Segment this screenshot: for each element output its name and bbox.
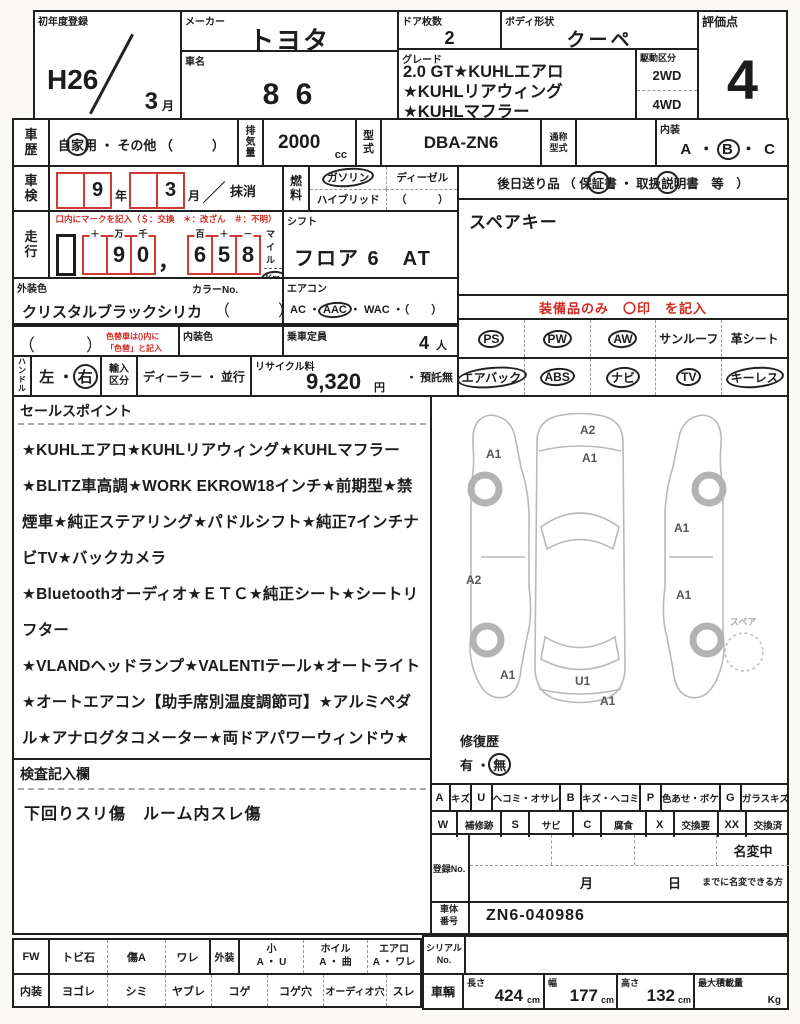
- repaint-cell: （ ） 色替車は()内に 「色替」と記入: [12, 325, 180, 357]
- later-manual-circled: 説: [661, 173, 674, 192]
- exterior-color-label: 外装色: [17, 280, 47, 295]
- registration-section: 登録No. 名変中 月 日 までに名変できる方: [430, 833, 789, 903]
- history-cell: 自家用 ・ その他 （ ）: [48, 118, 239, 167]
- recycle-fee-cell: リサイクル料 9,320 円 ・ 預託無: [250, 355, 459, 397]
- fuel-hybrid: ハイブリッド: [310, 189, 386, 211]
- vin-section: 車体番号 ZN6-040986: [430, 897, 789, 935]
- spare-key-cell: スペアキー: [457, 198, 789, 296]
- doors-cell: ドア枚数 2: [397, 10, 502, 50]
- name-change-pending: 名変中: [717, 835, 789, 865]
- recycle-deposit: ・ 預託無: [406, 369, 453, 385]
- inspection-text: 下回りスリ傷 ルーム内スレ傷: [24, 800, 262, 824]
- interior-grade-label: 内装: [660, 121, 680, 136]
- equip-airbag: エアバック: [459, 359, 524, 395]
- fuel-other: （ ）: [386, 189, 457, 211]
- maker-label: メーカー: [185, 13, 225, 28]
- sales-points-title: セールスポイント: [20, 401, 132, 421]
- equipment-header: 装備品のみ 〇印 を記入: [457, 294, 789, 320]
- odometer-group-2: 百6 ＋5 －8: [187, 235, 261, 275]
- damage-legend-table: Aキズ Uヘコミ・オサレ Bキズ・ヘコミ P色あせ・ボケ Gガラスキズ W補修跡…: [430, 783, 789, 837]
- equip-navi: ナビ: [590, 359, 656, 395]
- repair-history-selected: 無: [493, 755, 506, 774]
- first-registration-month: 3: [145, 88, 158, 116]
- payload-cell: 最大積載量 Kg: [695, 975, 787, 1008]
- interior-color-label: 内装色: [183, 328, 213, 343]
- equip-ps: PS: [459, 320, 524, 357]
- shift-value: フロア 6 AT: [294, 242, 432, 271]
- displacement-value: 2000: [278, 132, 320, 154]
- repaint-note: 色替車は()内に 「色替」と記入: [106, 331, 162, 355]
- car-name-label: 車名: [185, 53, 205, 68]
- drive-4wd: 4WD: [637, 91, 697, 119]
- shift-cell: シフト フロア 6 AT: [282, 210, 459, 279]
- damage-mark: A1: [582, 451, 597, 465]
- import-band: 輸入区分: [100, 355, 138, 397]
- aircon-cell: エアコン AC ・ AAC ・ WAC ・（ ）: [282, 277, 459, 325]
- alias-model-value: [575, 118, 657, 167]
- handle-band: ハンドル: [12, 355, 32, 397]
- name-change-note: までに名変できる方: [702, 875, 783, 888]
- handle-cell: 左 ・ 右: [30, 355, 102, 397]
- spare-tire-circle: [725, 633, 763, 671]
- auction-sheet: 初年度登録 H26 3 月 メーカー トヨタ 車名 8 6 ドア枚数 2 ボディ…: [0, 0, 800, 1024]
- shaken-month-box: 3: [129, 172, 185, 209]
- shift-label: シフト: [287, 213, 317, 228]
- equip-pw: PW: [524, 320, 590, 357]
- capacity-value: 4: [419, 333, 429, 354]
- damage-mark: U1: [575, 674, 590, 688]
- fuel-band: 燃料: [282, 165, 310, 212]
- grade-value: 2.0 GT★KUHLエアロ ★KUHLリアウィング ★KUHLマフラー: [403, 62, 564, 122]
- width-cell: 幅 177 cm: [545, 975, 618, 1008]
- color-no-label: カラーNo.: [192, 281, 238, 296]
- handle-selected: 右: [78, 366, 93, 387]
- damage-mark: A2: [580, 423, 595, 437]
- shaken-slash: ／: [202, 173, 226, 208]
- vehicle-band: 車輌: [424, 975, 464, 1008]
- mileage-cell: 口内にマークを記入（＄：交換 ＊：改ざん ＃：不明） ＋ 万9 千0 ， 百6 …: [48, 210, 284, 279]
- vehicle-dimensions-cell: 車輌 長さ 424 cm 幅 177 cm 高さ 132 cm 最大積載量 Kg: [422, 973, 789, 1010]
- capacity-cell: 乗車定員 4 人: [282, 325, 459, 357]
- shaken-band: 車検: [12, 165, 50, 212]
- diagram-column: スペア A2A1A1A1A2A1A1U1A1 修復歴 有 ・ 無 Aキズ Uヘコ…: [430, 395, 789, 935]
- serial-value: [466, 937, 787, 973]
- damage-mark: A1: [674, 521, 689, 535]
- sales-points-cell: セールスポイント ★KUHLエアロ★KUHLリアウィング★KUHLマフラー★BL…: [12, 395, 432, 760]
- repair-history-value: 有 ・ 無: [460, 755, 506, 774]
- mileage-note: 口内にマークを記入（＄：交換 ＊：改ざん ＃：不明）: [50, 213, 282, 225]
- grade-cell: グレード 2.0 GT★KUHLエアロ ★KUHLリアウィング ★KUHLマフラ…: [397, 48, 637, 120]
- equipment-row-2: エアバック ABS ナビ TV キーレス: [457, 357, 789, 397]
- later-items-cell: 後日送り品 （ 保証書 ・ 取扱説明書 等 ）: [457, 165, 789, 200]
- maker-cell: メーカー トヨタ: [180, 10, 399, 52]
- first-registration-year: H26: [47, 64, 98, 96]
- equip-keyless: キーレス: [721, 359, 787, 395]
- first-registration-month-unit: 月: [162, 97, 174, 114]
- body-shape-cell: ボディ形状 クーペ: [500, 10, 699, 50]
- car-damage-diagram: スペア A2A1A1A1A2A1A1U1A1: [432, 397, 787, 727]
- car-name-value: 8 6: [182, 52, 397, 128]
- capacity-unit: 人: [436, 337, 447, 353]
- import-cell: ディーラー ・ 並行: [136, 355, 252, 397]
- interior-grade-selected: B: [722, 141, 735, 158]
- equip-aw: AW: [590, 320, 656, 357]
- odometer-mark-box: [56, 234, 76, 276]
- equip-sunroof: サンルーフ: [655, 320, 721, 357]
- displacement-band: 排気量: [237, 118, 264, 167]
- equip-leather-seat: 革シート: [721, 320, 787, 357]
- length-cell: 長さ 424 cm: [464, 975, 545, 1008]
- damage-mark: A2: [466, 573, 481, 587]
- damage-mark: A1: [600, 694, 615, 708]
- score-label: 評価点: [702, 13, 738, 30]
- exterior-color-cell: 外装色 カラーNo. クリスタルブラックシリカ （ ）: [12, 277, 284, 325]
- damage-mark: A1: [676, 588, 691, 602]
- score-cell: 評価点 4: [697, 10, 788, 120]
- shaken-year-box: 9: [56, 172, 112, 209]
- alias-model-band: 通称型式: [540, 118, 577, 167]
- equip-tv: TV: [655, 359, 721, 395]
- inspection-cell: 検査記入欄 下回りスリ傷 ルーム内スレ傷: [12, 758, 432, 935]
- displacement-unit: cc: [335, 149, 347, 161]
- unit-mile: マイル: [264, 227, 282, 269]
- model-code-band: 型式: [355, 118, 382, 167]
- height-cell: 高さ 132 cm: [618, 975, 695, 1008]
- drive-type-cell: 駆動区分 2WD 4WD: [635, 48, 699, 120]
- shaken-cell: 9 年 3 月 ／ 抹消: [48, 165, 284, 212]
- damage-mark: A1: [486, 447, 501, 461]
- score-value: 4: [699, 12, 786, 132]
- drive-2wd: 2WD: [637, 62, 697, 90]
- fuel-cell: ガソリン ディーゼル ハイブリッド （ ）: [308, 165, 459, 212]
- shaken-erase: 抹消: [230, 181, 256, 200]
- serial-band: シリアルNo.: [424, 937, 466, 973]
- mileage-band: 走行: [12, 210, 50, 279]
- equip-abs: ABS: [524, 359, 590, 395]
- capacity-label: 乗車定員: [287, 328, 327, 343]
- equipment-row-1: PS PW AW サンルーフ 革シート: [457, 318, 789, 359]
- serial-cell: シリアルNo.: [422, 935, 789, 975]
- fuel-diesel: ディーゼル: [386, 167, 457, 189]
- history-selected: 家: [71, 135, 84, 154]
- displacement-cell: 2000 cc: [262, 118, 357, 167]
- first-registration-cell: 初年度登録 H26 3 月: [33, 10, 182, 120]
- history-band: 車歴: [12, 118, 50, 167]
- model-code-value: DBA-ZN6: [380, 118, 542, 167]
- odometer-group-1: ＋ 万9 千0: [82, 235, 156, 275]
- interior-color-cell: 内装色: [178, 325, 284, 357]
- inspection-title: 検査記入欄: [20, 764, 90, 784]
- aircon-selected: AAC: [323, 304, 347, 316]
- fuel-selected: ガソリン: [327, 170, 369, 185]
- spare-tire-label: スペア: [730, 615, 756, 628]
- body-shape-label: ボディ形状: [505, 13, 554, 28]
- car-name-cell: 車名 8 6: [180, 50, 399, 120]
- vin-value: ZN6-040986: [470, 897, 789, 935]
- doors-label: ドア枚数: [402, 13, 442, 28]
- first-registration-label: 初年度登録: [38, 13, 88, 28]
- aircon-label: エアコン: [287, 280, 327, 295]
- recycle-fee-value: 9,320: [306, 369, 361, 395]
- interior-grade-cell: 内装 A ・ B ・ C: [655, 118, 789, 167]
- spare-key-note: スペアキー: [469, 208, 558, 233]
- registration-band: 登録No.: [430, 835, 470, 901]
- repaint-paren: （ ）: [18, 331, 103, 356]
- exterior-color-value: クリスタルブラックシリカ: [22, 301, 202, 322]
- damage-code-table: FW トビ石 傷A ワレ 外装 小A ・ U ホイルA ・ 曲 エアロA ・ ワ…: [12, 938, 422, 1008]
- vin-band: 車体番号: [430, 897, 470, 935]
- damage-mark: A1: [500, 668, 515, 682]
- later-warranty-circled: 証: [592, 173, 605, 192]
- repair-history-label: 修復歴: [460, 731, 499, 750]
